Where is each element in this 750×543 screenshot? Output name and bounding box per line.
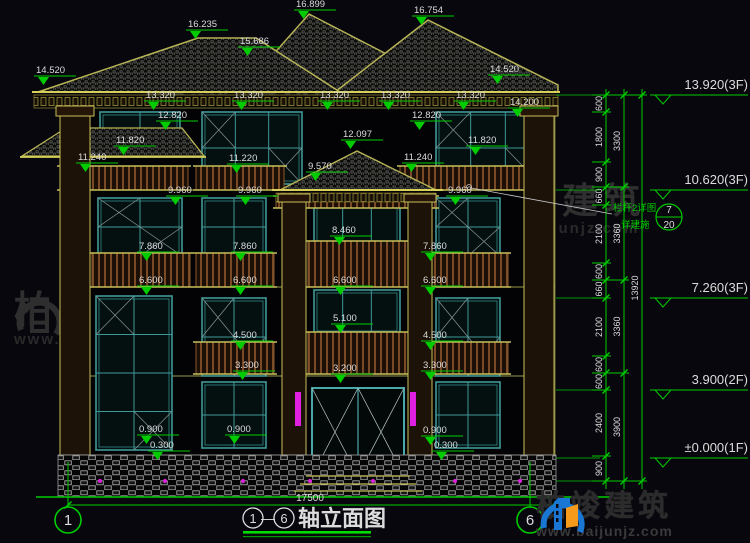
svg-text:14.520: 14.520 bbox=[490, 64, 519, 75]
svg-text:16.235: 16.235 bbox=[188, 19, 217, 30]
storey-elevation: ±0.000(1F) bbox=[650, 440, 748, 467]
svg-text:0.300: 0.300 bbox=[150, 440, 174, 451]
svg-text:11.820: 11.820 bbox=[468, 135, 496, 146]
svg-text:7: 7 bbox=[666, 205, 672, 216]
svg-text:3.300: 3.300 bbox=[235, 360, 259, 371]
cad-canvas: 柏竣建筑 www.baijunjz.com 柏竣建筑 www.baijunjz.… bbox=[0, 0, 750, 543]
window bbox=[436, 382, 500, 448]
storey-elevation: 10.620(3F) bbox=[650, 172, 748, 199]
svg-text:9.960: 9.960 bbox=[238, 185, 262, 196]
svg-text:1: 1 bbox=[64, 512, 72, 529]
svg-text:轴立面图: 轴立面图 bbox=[298, 506, 386, 531]
svg-text:13.320: 13.320 bbox=[381, 90, 410, 101]
svg-text:1800: 1800 bbox=[594, 127, 604, 147]
svg-text:6.600: 6.600 bbox=[233, 275, 257, 286]
svg-text:900: 900 bbox=[594, 167, 604, 182]
svg-text:3360: 3360 bbox=[612, 316, 622, 336]
window bbox=[314, 204, 400, 244]
svg-text:3900: 3900 bbox=[612, 417, 622, 437]
drawing-title: 1—6轴立面图 bbox=[243, 506, 386, 537]
svg-text:8.460: 8.460 bbox=[332, 225, 356, 236]
svg-text:11.240: 11.240 bbox=[78, 152, 106, 163]
svg-text:9.960: 9.960 bbox=[168, 185, 192, 196]
svg-text:0.900: 0.900 bbox=[139, 424, 163, 435]
svg-text:2100: 2100 bbox=[594, 317, 604, 337]
svg-text:600: 600 bbox=[594, 374, 604, 389]
svg-text:3.300: 3.300 bbox=[423, 360, 447, 371]
svg-text:3.900(2F): 3.900(2F) bbox=[692, 372, 748, 387]
svg-text:9.570: 9.570 bbox=[308, 161, 332, 172]
svg-text:6: 6 bbox=[280, 511, 287, 526]
svg-text:14.200: 14.200 bbox=[510, 97, 539, 108]
svg-text:1: 1 bbox=[249, 511, 256, 526]
storey-elevation: 13.920(3F) bbox=[650, 77, 748, 104]
brand-logo: 柏竣建筑 www.baijunjz.com bbox=[536, 492, 673, 538]
dimension-chain: 3300336033603900 bbox=[610, 89, 629, 489]
svg-text:6.600: 6.600 bbox=[139, 275, 163, 286]
svg-text:17500: 17500 bbox=[296, 493, 324, 504]
svg-text:660: 660 bbox=[594, 188, 604, 203]
svg-text:0.900: 0.900 bbox=[227, 424, 251, 435]
svg-text:7.860: 7.860 bbox=[233, 241, 257, 252]
svg-text:12.820: 12.820 bbox=[412, 110, 441, 121]
svg-text:900: 900 bbox=[594, 461, 604, 476]
storey-elevation: 7.260(3F) bbox=[650, 280, 748, 307]
roof-left-lower bbox=[20, 128, 206, 157]
svg-text:2400: 2400 bbox=[594, 413, 604, 433]
svg-text:6.600: 6.600 bbox=[333, 275, 357, 286]
svg-text:13.320: 13.320 bbox=[146, 90, 175, 101]
svg-text:16.899: 16.899 bbox=[296, 0, 325, 10]
svg-text:600: 600 bbox=[594, 264, 604, 279]
svg-text:600: 600 bbox=[594, 357, 604, 372]
svg-text:3300: 3300 bbox=[612, 131, 622, 151]
svg-text:10.620(3F): 10.620(3F) bbox=[684, 172, 748, 187]
svg-text:6: 6 bbox=[526, 512, 534, 529]
svg-text:11.220: 11.220 bbox=[229, 153, 257, 164]
elevation-marker: 16.899 bbox=[294, 0, 336, 19]
svg-text:600: 600 bbox=[594, 96, 604, 111]
svg-text:13920: 13920 bbox=[630, 275, 640, 300]
window bbox=[314, 290, 400, 334]
svg-text:16.754: 16.754 bbox=[414, 5, 443, 16]
svg-text:3.200: 3.200 bbox=[333, 363, 357, 374]
svg-text:9.960: 9.960 bbox=[448, 185, 472, 196]
brand-logo-icon bbox=[536, 492, 588, 542]
svg-text:13.320: 13.320 bbox=[456, 90, 485, 101]
svg-text:0.300: 0.300 bbox=[434, 440, 458, 451]
dimension-chain: 13920 bbox=[628, 89, 647, 489]
elevation-marker: 16.235 bbox=[186, 19, 228, 39]
svg-text:14.520: 14.520 bbox=[36, 65, 65, 76]
storey-elevation: 3.900(2F) bbox=[650, 372, 748, 399]
svg-text:2100: 2100 bbox=[594, 224, 604, 244]
svg-text:4.500: 4.500 bbox=[423, 330, 447, 341]
elevation-drawing: 16.23516.89916.75415.68614.52014.52014.2… bbox=[0, 0, 750, 543]
svg-text:4.500: 4.500 bbox=[233, 330, 257, 341]
svg-text:15.686: 15.686 bbox=[240, 36, 269, 47]
svg-text:660: 660 bbox=[594, 281, 604, 296]
svg-text:5.100: 5.100 bbox=[333, 313, 357, 324]
dimension-chain: 6001800900660210060066021006006002400900 bbox=[592, 89, 611, 489]
svg-text:0.900: 0.900 bbox=[423, 425, 447, 436]
svg-text:6.600: 6.600 bbox=[423, 275, 447, 286]
svg-text:13.920(3F): 13.920(3F) bbox=[684, 77, 748, 92]
svg-text:13.320: 13.320 bbox=[320, 90, 349, 101]
svg-text:12.820: 12.820 bbox=[158, 110, 187, 121]
svg-text:详建施: 详建施 bbox=[621, 219, 650, 231]
svg-text:11.820: 11.820 bbox=[116, 135, 144, 146]
svg-text:20: 20 bbox=[663, 220, 675, 231]
svg-text:7.860: 7.860 bbox=[423, 241, 447, 252]
svg-text:13.320: 13.320 bbox=[234, 90, 263, 101]
svg-text:±0.000(1F): ±0.000(1F) bbox=[685, 440, 749, 455]
svg-text:11.240: 11.240 bbox=[404, 152, 432, 163]
svg-text:7.260(3F): 7.260(3F) bbox=[692, 280, 748, 295]
svg-text:栏杆2详图: 栏杆2详图 bbox=[613, 202, 656, 214]
svg-text:12.097: 12.097 bbox=[343, 129, 372, 140]
svg-text:7.860: 7.860 bbox=[139, 241, 163, 252]
svg-text:—: — bbox=[261, 510, 275, 526]
